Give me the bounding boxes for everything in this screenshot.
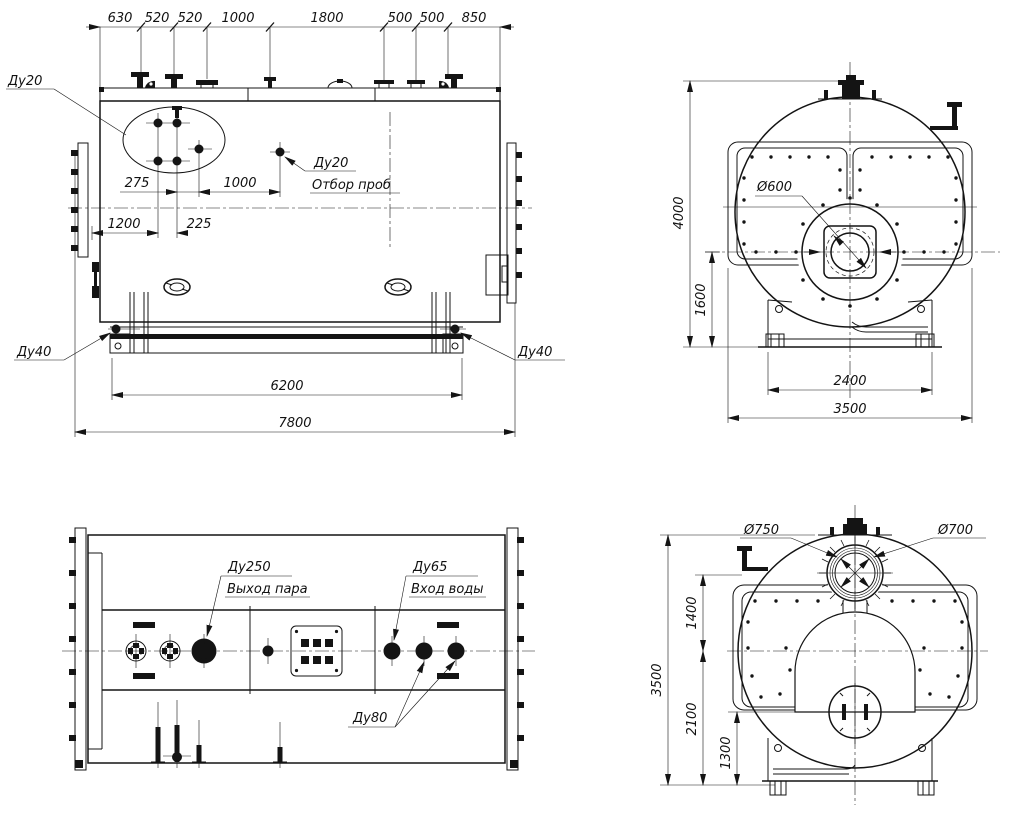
side-shell	[68, 87, 532, 322]
side-dim-1200-225: 1200 225	[92, 217, 211, 240]
dim-275: 275	[125, 176, 150, 191]
dim-6200: 6200	[270, 379, 303, 394]
dim-520a: 520	[145, 11, 170, 26]
label-du40-left: Ду40	[16, 345, 51, 360]
label-du20-sample: Ду20	[313, 156, 348, 171]
plan-view: Ду250 Выход пара Ду65 Вход воды Ду80	[62, 528, 535, 770]
dim-1000-top: 1000	[221, 11, 254, 26]
dim-520b: 520	[178, 11, 203, 26]
rear-view: Ø750 Ø700 1400 2100 3500 1300	[650, 505, 988, 805]
dim-500b: 500	[420, 11, 445, 26]
label-d600: Ø600	[756, 180, 792, 195]
label-du65: Ду65	[412, 560, 447, 575]
label-d700: Ø700	[937, 523, 973, 538]
dim-1800: 1800	[310, 11, 343, 26]
dim-3500-rear: 3500	[650, 663, 665, 696]
dim-1300: 1300	[719, 736, 734, 769]
plan-labels: Ду250 Выход пара Ду65 Вход воды Ду80	[207, 560, 486, 727]
dim-225: 225	[187, 217, 212, 232]
dim-2100: 2100	[685, 702, 700, 735]
side-manholes	[164, 279, 411, 295]
side-dim-275-1000: 275 1000	[120, 176, 280, 192]
front-view: 4000 1600 2400 3500 Ø600	[672, 62, 1000, 423]
dim-3500-front: 3500	[833, 402, 866, 417]
label-water-in: Вход воды	[411, 582, 484, 597]
dim-1600: 1600	[694, 283, 709, 316]
side-top-nozzles	[131, 72, 463, 88]
label-du20: Ду20	[7, 74, 42, 89]
dim-1000: 1000	[223, 176, 256, 191]
boiler-drawing: 630 520 520 1000 1800 500 500 850	[0, 0, 1024, 817]
side-sample-nozzle	[270, 142, 290, 197]
drawing-sheet: 630 520 520 1000 1800 500 500 850	[0, 0, 1024, 817]
label-du40-right: Ду40	[517, 345, 552, 360]
side-view: 630 520 520 1000 1800 500 500 850	[6, 11, 565, 437]
dim-2400: 2400	[833, 374, 866, 389]
side-labels: Ду20 Ду20 Отбор проб Ду40 Ду40	[6, 74, 565, 360]
label-sample: Отбор проб	[312, 178, 391, 193]
label-steam-out: Выход пара	[227, 582, 308, 597]
plan-bottom-probes	[151, 700, 287, 768]
label-d750: Ø750	[743, 523, 779, 538]
label-du80: Ду80	[352, 711, 387, 726]
dim-1200: 1200	[107, 217, 140, 232]
dim-1400: 1400	[685, 596, 700, 629]
dim-4000: 4000	[672, 196, 687, 229]
side-dim-6200-7800: 6200 7800	[75, 358, 515, 432]
plan-fittings	[126, 622, 465, 679]
dim-500a: 500	[388, 11, 413, 26]
label-du250: Ду250	[227, 560, 271, 575]
dim-850: 850	[462, 11, 487, 26]
dim-630: 630	[108, 11, 133, 26]
dim-7800: 7800	[278, 416, 311, 431]
